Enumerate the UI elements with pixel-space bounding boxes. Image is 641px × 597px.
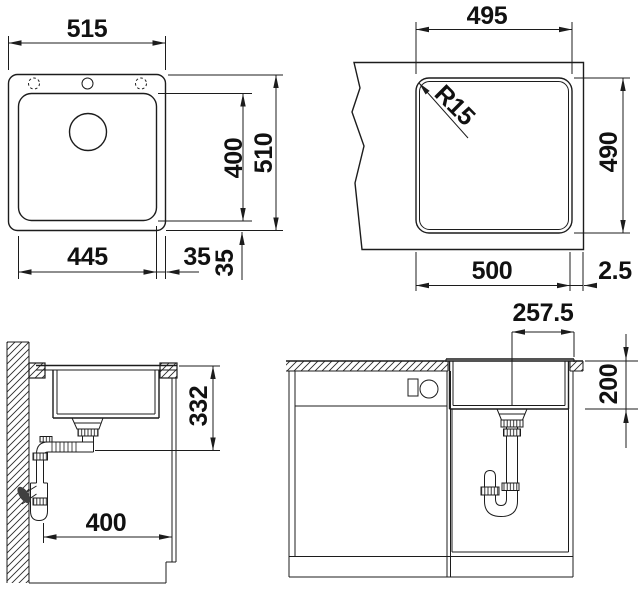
sink-front-section	[446, 359, 574, 409]
dim-label-cabinet-depth: 400	[86, 509, 127, 537]
bowl-section	[53, 370, 159, 418]
dim-label-edge-offset: 2.5	[598, 257, 632, 285]
dim-label-right-margin: 35	[183, 243, 211, 271]
tailpiece	[83, 436, 94, 442]
union-nut	[502, 483, 519, 491]
dim-label-corner-radius: R15	[429, 80, 481, 132]
strainer-nut	[78, 429, 98, 436]
dim-label-cutout-width: 495	[467, 2, 508, 30]
appliance-square-symbol	[408, 379, 418, 396]
sink-rim-section	[36, 366, 177, 371]
dim-label-bowl-width: 445	[67, 243, 108, 271]
front-section-view: 257.5 200	[286, 299, 638, 577]
dim-corner-radius: R15	[419, 80, 481, 138]
top-view: 515 510 400 445 35 35	[9, 15, 284, 280]
dim-bowl-depth: 400	[158, 94, 252, 222]
dim-bowl-width: 445	[19, 226, 166, 279]
dim-label-bowl-inner-depth: 200	[595, 364, 623, 405]
appliance-circle-symbol	[420, 380, 438, 398]
side-section-view: 332 400	[7, 342, 220, 583]
u-bend	[31, 511, 48, 521]
dim-label-recess-width: 500	[472, 257, 513, 285]
bowl-outline	[19, 94, 157, 221]
tap-hole-right-optional	[136, 78, 147, 89]
dim-label-cutout-depth: 490	[595, 132, 623, 173]
tap-hole-left-optional	[29, 78, 40, 89]
corrugated-pipe-ticks	[52, 442, 76, 452]
worktop-outline	[352, 63, 584, 250]
dim-label-overall-width: 515	[67, 15, 108, 43]
union-nut	[40, 437, 52, 443]
dim-bottom-margin: 35	[211, 232, 242, 280]
dim-bowl-inner-depth: 200	[585, 334, 638, 448]
union-nut	[504, 429, 521, 436]
dim-label-outlet-height: 332	[185, 386, 213, 427]
union-nut	[33, 498, 48, 505]
cabinets-front	[289, 371, 573, 577]
dim-cabinet-depth: 400	[44, 509, 173, 543]
dim-edge-offset: 2.5	[570, 252, 632, 291]
dim-overall-width: 515	[9, 15, 166, 70]
dim-right-margin: 35	[157, 243, 211, 272]
dim-label-bowl-depth: 400	[220, 138, 248, 179]
dim-label-overall-depth: 510	[250, 133, 278, 174]
drain-trap-front	[481, 409, 527, 517]
trap-cap	[485, 471, 496, 478]
dim-outlet-height: 332	[95, 366, 220, 451]
union-nut	[33, 453, 48, 460]
tap-hole-center	[82, 78, 93, 89]
dim-label-drain-center-offset: 257.5	[512, 299, 573, 327]
sink-outline	[9, 75, 166, 231]
technical-drawing-page: 515 510 400 445 35 35	[0, 0, 641, 597]
dim-recess-width: 500	[416, 252, 570, 291]
technical-drawing-canvas: 515 510 400 445 35 35	[0, 0, 641, 597]
wall-section	[7, 342, 29, 583]
worktop-front-section	[286, 361, 583, 371]
cutout-view: R15 495 490 500 2.5	[352, 2, 632, 291]
union-nut	[481, 487, 499, 495]
dim-cutout-depth: 490	[574, 78, 630, 233]
strainer-nut	[501, 420, 523, 427]
drain-hole	[70, 114, 107, 151]
dim-label-bottom-margin: 35	[211, 249, 239, 277]
